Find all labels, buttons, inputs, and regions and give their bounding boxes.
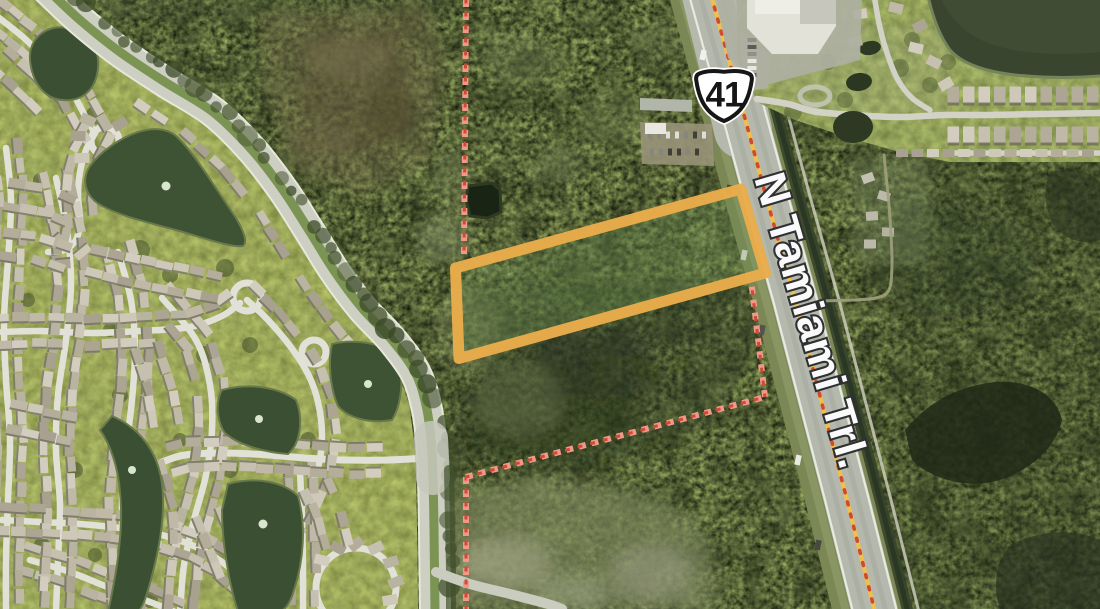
svg-text:41: 41 bbox=[706, 76, 743, 115]
